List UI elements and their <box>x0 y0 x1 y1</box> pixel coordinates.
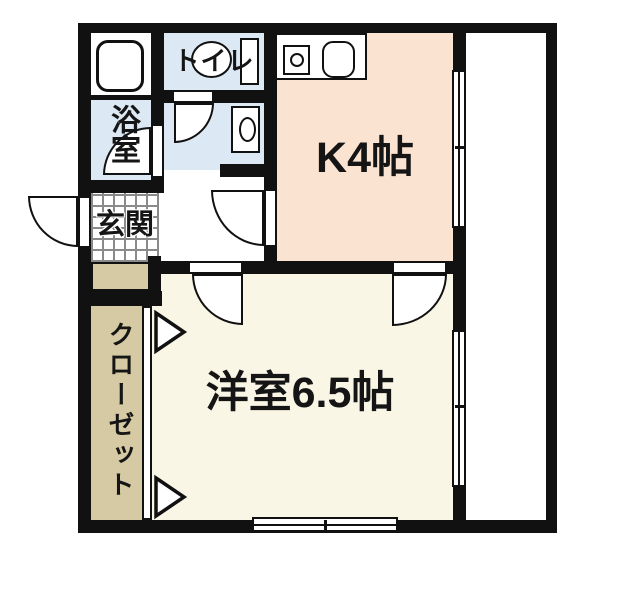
kitchen-label: K4帖 <box>277 134 453 182</box>
wall-left <box>78 23 91 533</box>
room-side-window-latch <box>455 405 465 408</box>
entrance-door-swing <box>28 196 78 247</box>
toilet-door-leaf <box>172 90 214 103</box>
wall-right-middle <box>453 228 466 330</box>
wall-closet-top <box>78 291 162 306</box>
bathroom-door-leaf <box>151 124 164 178</box>
stove-burner-ring-icon <box>290 53 304 67</box>
shoe-cabinet <box>91 262 150 291</box>
bathtub-icon <box>96 40 144 92</box>
wall-bath-bottom <box>78 180 164 193</box>
closet-label: クローゼット <box>101 311 139 511</box>
room-side-window-rail <box>458 332 460 485</box>
room-kitchen-door-leaf <box>392 261 447 274</box>
wall-right-lower <box>453 487 466 520</box>
floorplan-canvas: トイレ 浴室 玄関 K4帖 洋室6.5帖 クローゼット <box>0 0 640 589</box>
toilet-label: トイレ <box>164 44 264 78</box>
wall-washroom-stub <box>220 164 264 177</box>
kitchen-window-latch <box>455 146 465 149</box>
kitchen-window <box>452 70 466 228</box>
room-bottom-window <box>252 517 398 532</box>
room-side-window <box>452 330 466 487</box>
room-bottom-window-latch <box>324 520 327 530</box>
bathroom-label: 浴室 <box>103 96 141 172</box>
wall-right <box>546 23 557 533</box>
closet-door-arrow-bottom <box>153 473 189 521</box>
closet-door-arrow-top <box>153 308 189 356</box>
kitchen-door-leaf <box>264 189 277 247</box>
kitchen-window-rail <box>458 72 460 226</box>
balcony <box>466 33 546 520</box>
wall-kitchen-right-upper <box>453 33 466 70</box>
wall-top <box>78 23 557 33</box>
kitchen-sink-icon <box>322 41 355 78</box>
entrance-label: 玄関 <box>89 206 161 244</box>
western-room-label: 洋室6.5帖 <box>150 369 450 417</box>
washbasin-bowl-icon <box>239 117 256 142</box>
room-hall-door-leaf <box>188 261 243 274</box>
